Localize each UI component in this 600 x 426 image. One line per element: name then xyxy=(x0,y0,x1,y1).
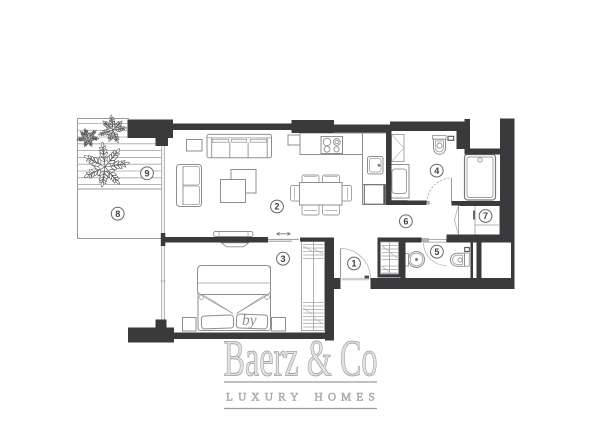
svg-text:4: 4 xyxy=(434,166,439,176)
svg-text:6: 6 xyxy=(403,217,408,227)
svg-text:3: 3 xyxy=(280,254,285,264)
svg-text:by: by xyxy=(242,312,257,329)
svg-text:2: 2 xyxy=(274,202,279,212)
svg-text:8: 8 xyxy=(115,209,120,219)
svg-text:5: 5 xyxy=(434,247,439,257)
svg-text:7: 7 xyxy=(483,211,488,221)
svg-text:LUXURY HOMES: LUXURY HOMES xyxy=(226,392,380,404)
svg-text:1: 1 xyxy=(351,259,356,269)
svg-text:9: 9 xyxy=(144,169,149,179)
